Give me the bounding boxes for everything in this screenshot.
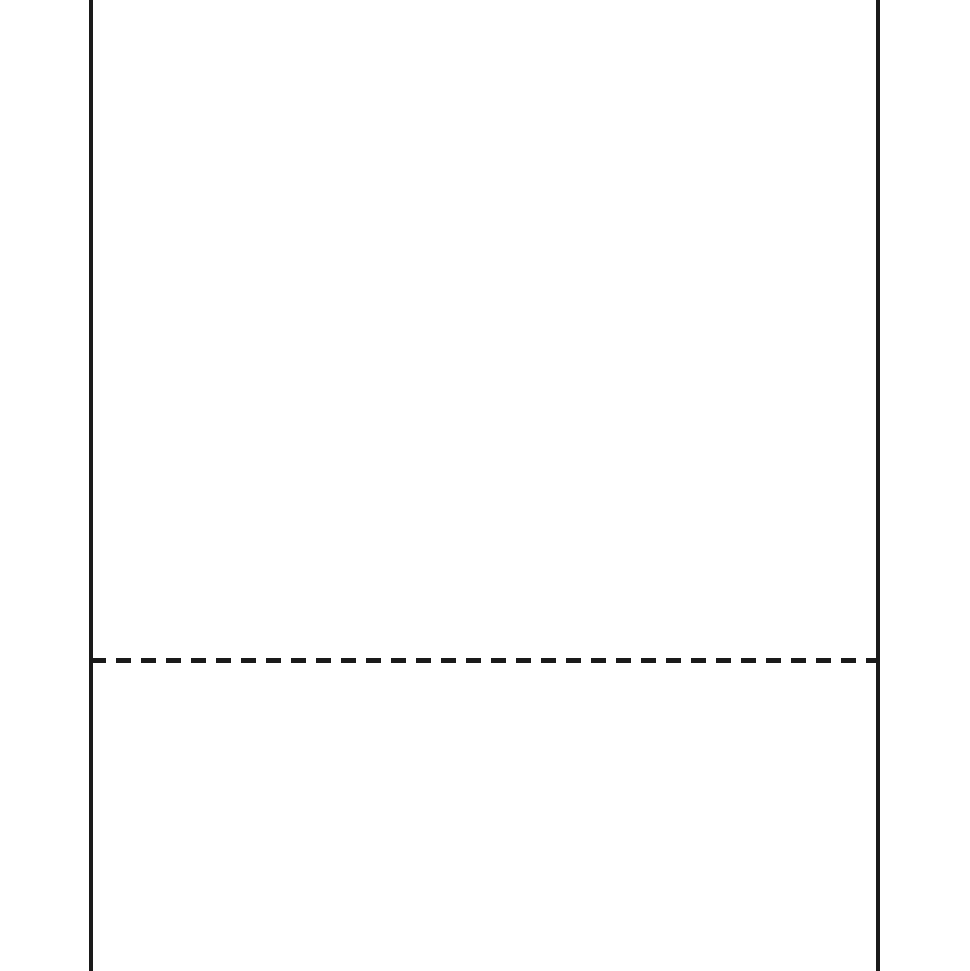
sheet-right-edge-line bbox=[876, 0, 880, 971]
sheet-upper-panel bbox=[93, 0, 876, 658]
sheet-left-edge-line bbox=[89, 0, 93, 971]
perforation-dashed-line bbox=[91, 658, 880, 663]
paper-sheet bbox=[0, 0, 970, 971]
sheet-lower-panel bbox=[93, 663, 876, 971]
